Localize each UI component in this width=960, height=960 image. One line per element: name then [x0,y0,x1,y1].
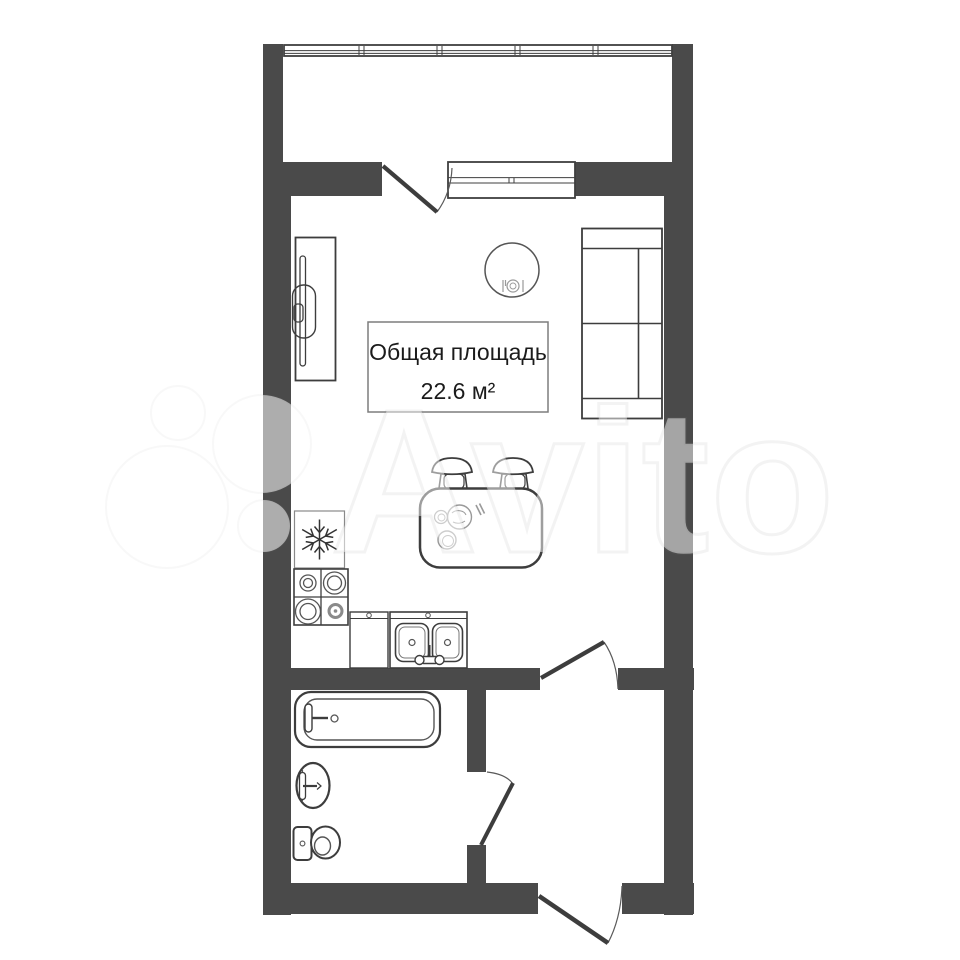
wall-bottom-left [263,883,538,914]
wall-mid-right [618,668,694,690]
wall-bottom-right [622,883,694,914]
round-table [485,243,539,297]
wall-right-upper [672,44,693,162]
wall-balcony-divider-left [283,162,382,196]
kitchen-sink [390,612,467,668]
floor-plan-image: Общая площадь 22.6 м² [0,0,960,960]
wall-balcony-divider-right [575,162,665,196]
wall-bath-upper [467,690,486,772]
floor-plan-svg: Общая площадь 22.6 м² [0,0,960,960]
bathtub [295,692,440,747]
wardrobe [293,238,336,381]
area-label-title: Общая площадь [369,339,547,365]
kitchen-cabinet [350,612,388,668]
wall-bath-lower [467,845,486,884]
washbasin [297,763,330,808]
room-window [448,162,575,198]
balcony-glazing [284,45,672,56]
wall-mid-left [263,668,540,690]
toilet [294,827,341,861]
wall-left-upper [263,44,283,162]
watermark-text: Avito [330,367,835,596]
